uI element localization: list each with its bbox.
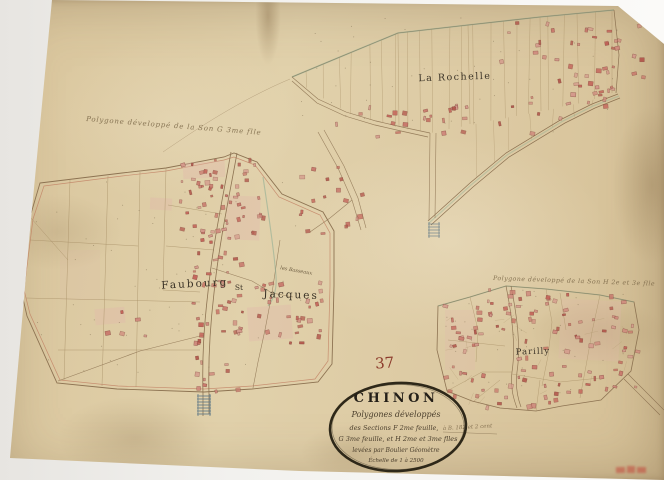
building-mark bbox=[595, 342, 601, 346]
parcel-line bbox=[381, 40, 383, 123]
building-mark bbox=[518, 376, 520, 379]
building-mark bbox=[307, 318, 313, 323]
building-mark bbox=[606, 70, 609, 74]
building-mark bbox=[208, 234, 212, 237]
map-drawing: Faubourg St Jacques les Basseaux La R bbox=[0, 0, 664, 480]
speck bbox=[119, 322, 120, 323]
building-mark bbox=[496, 325, 499, 328]
speck bbox=[86, 238, 87, 239]
speck bbox=[282, 182, 283, 183]
building-mark bbox=[574, 73, 578, 78]
building-mark bbox=[555, 58, 559, 61]
speck bbox=[37, 322, 38, 323]
speck bbox=[563, 350, 564, 351]
building-mark bbox=[321, 232, 325, 234]
building-mark bbox=[477, 318, 482, 322]
building-mark bbox=[465, 105, 468, 108]
building-mark bbox=[502, 328, 506, 331]
building-mark bbox=[546, 22, 550, 27]
building-mark bbox=[221, 330, 225, 332]
speck bbox=[185, 192, 186, 193]
speck bbox=[472, 329, 473, 330]
building-mark bbox=[199, 333, 203, 338]
building-mark bbox=[119, 331, 125, 336]
speck bbox=[385, 18, 386, 19]
speck bbox=[521, 330, 522, 331]
building-mark bbox=[242, 215, 244, 218]
speck bbox=[578, 86, 579, 87]
building-mark bbox=[220, 185, 223, 189]
north-boundary-green bbox=[292, 10, 614, 77]
speck bbox=[364, 118, 365, 119]
building-mark bbox=[568, 64, 573, 69]
building-mark bbox=[578, 320, 582, 323]
speck bbox=[529, 79, 530, 80]
building-mark bbox=[586, 383, 591, 385]
speck bbox=[535, 296, 536, 297]
building-mark bbox=[257, 214, 262, 218]
speck bbox=[135, 286, 136, 287]
building-mark bbox=[196, 317, 200, 320]
speck bbox=[600, 100, 601, 101]
cartouche-line5: Échelle de 1 à 2500 bbox=[367, 456, 424, 464]
building-mark bbox=[624, 346, 627, 349]
building-mark bbox=[510, 290, 515, 294]
building-mark bbox=[641, 75, 645, 79]
speck bbox=[172, 328, 173, 329]
building-mark bbox=[503, 306, 508, 310]
building-mark bbox=[609, 294, 613, 299]
speck bbox=[446, 326, 447, 327]
building-mark bbox=[387, 115, 392, 118]
building-mark bbox=[592, 318, 595, 321]
speck bbox=[351, 26, 352, 27]
building-mark bbox=[299, 342, 304, 344]
building-mark bbox=[426, 118, 430, 122]
side-note-underline bbox=[443, 432, 497, 434]
sheet-number: 37 bbox=[374, 353, 394, 372]
building-mark bbox=[228, 237, 231, 240]
building-mark bbox=[473, 326, 478, 330]
speck bbox=[111, 250, 112, 251]
building-mark bbox=[311, 199, 315, 203]
building-mark bbox=[499, 59, 504, 64]
building-mark bbox=[456, 332, 461, 335]
building-mark bbox=[241, 311, 243, 313]
building-mark bbox=[549, 372, 554, 377]
building-mark bbox=[632, 54, 636, 58]
speck bbox=[493, 41, 494, 42]
building-mark bbox=[235, 185, 239, 189]
building-mark bbox=[105, 331, 111, 336]
building-mark bbox=[568, 323, 571, 326]
building-mark bbox=[505, 396, 508, 399]
exit-road bbox=[624, 374, 664, 415]
building-mark bbox=[608, 89, 610, 93]
building-mark bbox=[558, 116, 562, 120]
building-mark bbox=[474, 330, 477, 335]
parcel-line bbox=[306, 71, 307, 88]
speck bbox=[460, 18, 461, 19]
speck bbox=[139, 210, 140, 211]
speck bbox=[316, 68, 317, 69]
building-mark bbox=[233, 196, 238, 198]
annotation-side-note: à B. 182 et 2 cent bbox=[443, 422, 493, 432]
building-mark bbox=[488, 288, 491, 291]
building-mark bbox=[442, 118, 445, 123]
building-mark bbox=[268, 300, 271, 304]
building-mark bbox=[529, 102, 533, 104]
speck bbox=[576, 297, 577, 298]
building-mark bbox=[222, 306, 227, 310]
building-mark bbox=[592, 36, 597, 38]
label-la-rochelle: La Rochelle bbox=[418, 71, 491, 85]
cartouche-title: CHINON bbox=[354, 391, 439, 406]
parcel-line bbox=[592, 100, 593, 106]
building-mark bbox=[221, 205, 225, 210]
building-mark bbox=[213, 259, 218, 262]
building-mark bbox=[206, 273, 211, 276]
speck bbox=[154, 217, 155, 218]
building-mark bbox=[566, 102, 571, 105]
building-mark bbox=[610, 86, 613, 89]
speck bbox=[75, 259, 76, 260]
building-mark bbox=[475, 343, 479, 346]
speck bbox=[106, 182, 107, 183]
building-mark bbox=[189, 190, 192, 195]
speck bbox=[56, 212, 57, 213]
building-cluster-north bbox=[487, 288, 559, 334]
building-mark bbox=[506, 312, 511, 316]
building-mark bbox=[599, 375, 604, 379]
parcel-line bbox=[624, 361, 627, 370]
annotation-section-g: Polygone développé de la Son G 3me flle bbox=[85, 115, 262, 137]
building-mark bbox=[216, 309, 220, 314]
building-mark bbox=[265, 330, 270, 335]
building-mark bbox=[205, 180, 210, 185]
speck bbox=[101, 346, 102, 347]
speck bbox=[90, 334, 91, 335]
building-mark bbox=[498, 121, 501, 126]
building-mark bbox=[451, 326, 456, 330]
building-mark bbox=[489, 314, 492, 317]
building-mark bbox=[262, 284, 266, 287]
building-mark bbox=[599, 90, 604, 93]
building-mark bbox=[589, 344, 594, 348]
building-mark bbox=[209, 173, 211, 177]
building-mark bbox=[315, 302, 319, 307]
building-cluster-south bbox=[481, 372, 560, 410]
building-mark bbox=[447, 390, 452, 394]
speck bbox=[612, 78, 613, 79]
building-mark bbox=[197, 386, 201, 390]
building-mark bbox=[588, 81, 593, 86]
building-mark bbox=[336, 188, 340, 192]
diagonal-road-green bbox=[429, 96, 619, 223]
building-mark bbox=[197, 342, 201, 345]
building-mark bbox=[554, 392, 559, 396]
speck bbox=[338, 51, 339, 52]
building-mark bbox=[598, 94, 602, 96]
building-mark bbox=[229, 201, 232, 204]
speck bbox=[176, 274, 177, 275]
speck bbox=[455, 321, 456, 322]
building-mark bbox=[634, 386, 637, 388]
parcel-line bbox=[528, 18, 530, 114]
building-mark bbox=[213, 177, 218, 181]
building-mark bbox=[218, 305, 223, 307]
speck bbox=[453, 383, 454, 384]
building-mark bbox=[195, 356, 199, 360]
building-mark bbox=[545, 302, 549, 306]
building-mark bbox=[238, 327, 242, 330]
building-mark bbox=[588, 27, 594, 31]
building-mark bbox=[236, 388, 241, 392]
speck bbox=[196, 207, 197, 208]
building-mark bbox=[210, 195, 213, 198]
building-mark bbox=[197, 251, 200, 255]
building-mark bbox=[578, 374, 581, 378]
speck bbox=[41, 334, 42, 335]
building-mark bbox=[542, 55, 546, 59]
building-mark bbox=[202, 202, 206, 207]
building-mark bbox=[548, 401, 550, 404]
building-mark bbox=[518, 297, 522, 301]
building-mark bbox=[403, 122, 408, 126]
map-section-la-rochelle: La Rochelle bbox=[292, 10, 646, 238]
building-mark bbox=[227, 271, 229, 273]
speck bbox=[469, 303, 470, 304]
building-mark bbox=[144, 335, 147, 337]
building-mark bbox=[391, 121, 396, 125]
building-mark bbox=[610, 307, 614, 310]
label-jacques: Jacques bbox=[262, 288, 319, 302]
speck bbox=[138, 372, 139, 373]
building-mark bbox=[287, 315, 291, 318]
building-mark bbox=[225, 194, 228, 197]
map-section-parilly: Parilly bbox=[437, 286, 664, 415]
building-mark bbox=[462, 117, 467, 120]
building-mark bbox=[508, 303, 512, 306]
speck bbox=[607, 109, 608, 110]
speck bbox=[494, 95, 495, 96]
speck bbox=[603, 360, 604, 361]
building-mark bbox=[323, 195, 326, 198]
building-mark bbox=[423, 116, 426, 120]
speck bbox=[574, 356, 575, 357]
building-mark bbox=[180, 227, 185, 231]
building-mark bbox=[226, 223, 228, 225]
building-mark bbox=[512, 318, 516, 323]
building-mark bbox=[562, 314, 566, 316]
building-mark bbox=[552, 299, 557, 304]
building-mark bbox=[507, 32, 510, 34]
building-mark bbox=[193, 224, 197, 227]
building-mark bbox=[532, 319, 536, 323]
speck bbox=[302, 115, 303, 116]
building-mark bbox=[210, 184, 213, 188]
building-mark bbox=[562, 365, 566, 367]
building-mark bbox=[215, 390, 218, 394]
east-edge bbox=[614, 10, 619, 93]
speck bbox=[178, 324, 179, 325]
building-mark bbox=[585, 29, 588, 33]
building-mark bbox=[193, 271, 196, 273]
building-mark bbox=[311, 167, 316, 171]
diagonal-road bbox=[428, 94, 620, 225]
speck bbox=[474, 66, 475, 67]
building-mark bbox=[451, 318, 453, 322]
building-mark bbox=[319, 329, 322, 332]
building-mark bbox=[612, 66, 615, 69]
building-mark bbox=[571, 92, 576, 97]
building-mark bbox=[376, 135, 380, 138]
building-mark bbox=[214, 159, 216, 161]
building-mark bbox=[622, 350, 626, 352]
building-mark bbox=[461, 130, 466, 134]
parcel-line bbox=[548, 16, 549, 110]
building-mark bbox=[607, 30, 612, 32]
speck bbox=[315, 33, 316, 34]
building-mark bbox=[615, 46, 620, 51]
building-mark bbox=[558, 79, 562, 84]
building-mark bbox=[203, 383, 207, 387]
speck bbox=[488, 382, 489, 383]
speck bbox=[559, 392, 560, 393]
building-mark bbox=[604, 41, 609, 46]
speck bbox=[126, 335, 127, 336]
speck bbox=[497, 349, 498, 350]
parcel-line bbox=[469, 393, 474, 405]
speck bbox=[479, 99, 480, 100]
building-mark bbox=[605, 387, 608, 392]
building-mark bbox=[570, 41, 573, 45]
building-mark bbox=[521, 369, 526, 371]
speck bbox=[370, 85, 371, 86]
parcel-line bbox=[465, 375, 472, 382]
building-mark bbox=[442, 131, 447, 136]
building-mark bbox=[255, 286, 259, 289]
road-to-la-rochelle bbox=[163, 79, 290, 152]
building-mark bbox=[475, 394, 479, 398]
building-mark bbox=[532, 365, 537, 369]
speck bbox=[522, 290, 523, 291]
building-mark bbox=[595, 86, 599, 89]
building-mark bbox=[319, 289, 323, 293]
speck bbox=[513, 334, 514, 335]
building-mark bbox=[254, 163, 256, 166]
building-mark bbox=[121, 310, 124, 313]
speck bbox=[117, 364, 118, 365]
building-mark bbox=[216, 229, 221, 234]
building-mark bbox=[450, 345, 453, 348]
building-mark bbox=[192, 302, 196, 304]
building-mark bbox=[299, 214, 302, 216]
building-mark bbox=[204, 169, 208, 173]
building-mark bbox=[233, 321, 237, 326]
speck bbox=[466, 374, 467, 375]
building-mark bbox=[298, 324, 304, 328]
building-mark bbox=[551, 28, 555, 32]
speck bbox=[36, 221, 37, 222]
speck bbox=[412, 120, 413, 121]
speck bbox=[48, 359, 49, 360]
speck bbox=[405, 29, 406, 30]
building-mark bbox=[199, 185, 202, 188]
building-mark bbox=[527, 404, 533, 409]
parcel-line bbox=[530, 114, 532, 140]
building-mark bbox=[135, 318, 140, 322]
speck bbox=[553, 131, 554, 132]
speck bbox=[508, 82, 509, 83]
speck bbox=[186, 239, 187, 240]
speck bbox=[522, 368, 523, 369]
building-mark bbox=[179, 200, 182, 204]
building-mark bbox=[462, 372, 467, 375]
building-mark bbox=[603, 104, 608, 109]
speck bbox=[236, 201, 237, 202]
building-mark bbox=[577, 43, 580, 46]
building-mark bbox=[546, 295, 551, 299]
speck bbox=[283, 281, 284, 282]
speck bbox=[411, 75, 412, 76]
speck bbox=[93, 245, 94, 246]
building-mark bbox=[243, 172, 247, 175]
annotation-section-h: Polygone développé de la Son H 2e et 3e … bbox=[492, 275, 655, 288]
building-mark bbox=[530, 312, 534, 315]
speck bbox=[208, 367, 209, 368]
building-mark bbox=[485, 406, 489, 411]
speck bbox=[623, 294, 624, 295]
building-mark bbox=[622, 329, 628, 334]
building-mark bbox=[395, 131, 400, 134]
building-mark bbox=[356, 217, 358, 221]
speck bbox=[185, 271, 186, 272]
speck bbox=[493, 79, 494, 80]
building-mark bbox=[508, 384, 514, 389]
speck bbox=[593, 56, 594, 57]
building-mark bbox=[640, 58, 645, 62]
building-mark bbox=[201, 238, 205, 241]
speck bbox=[152, 223, 153, 224]
building-mark bbox=[515, 21, 519, 24]
building-mark bbox=[508, 295, 513, 299]
building-mark bbox=[611, 47, 615, 50]
building-mark bbox=[233, 257, 238, 260]
building-mark bbox=[587, 101, 590, 104]
speck bbox=[159, 288, 160, 289]
building-mark bbox=[544, 384, 546, 388]
speck bbox=[83, 370, 84, 371]
speck bbox=[110, 360, 111, 361]
parcel-washes bbox=[445, 298, 622, 370]
speck bbox=[578, 304, 579, 305]
building-mark bbox=[588, 371, 592, 374]
building-mark bbox=[236, 192, 239, 196]
speck bbox=[258, 337, 259, 338]
building-mark bbox=[528, 317, 532, 322]
building-mark bbox=[566, 293, 569, 296]
building-mark bbox=[278, 282, 284, 287]
building-mark bbox=[628, 355, 633, 358]
speck bbox=[616, 30, 617, 31]
building-mark bbox=[452, 107, 456, 111]
building-mark bbox=[209, 372, 215, 375]
building-mark bbox=[594, 376, 596, 381]
building-mark bbox=[225, 220, 227, 222]
speck bbox=[446, 317, 447, 318]
building-mark bbox=[554, 398, 559, 403]
